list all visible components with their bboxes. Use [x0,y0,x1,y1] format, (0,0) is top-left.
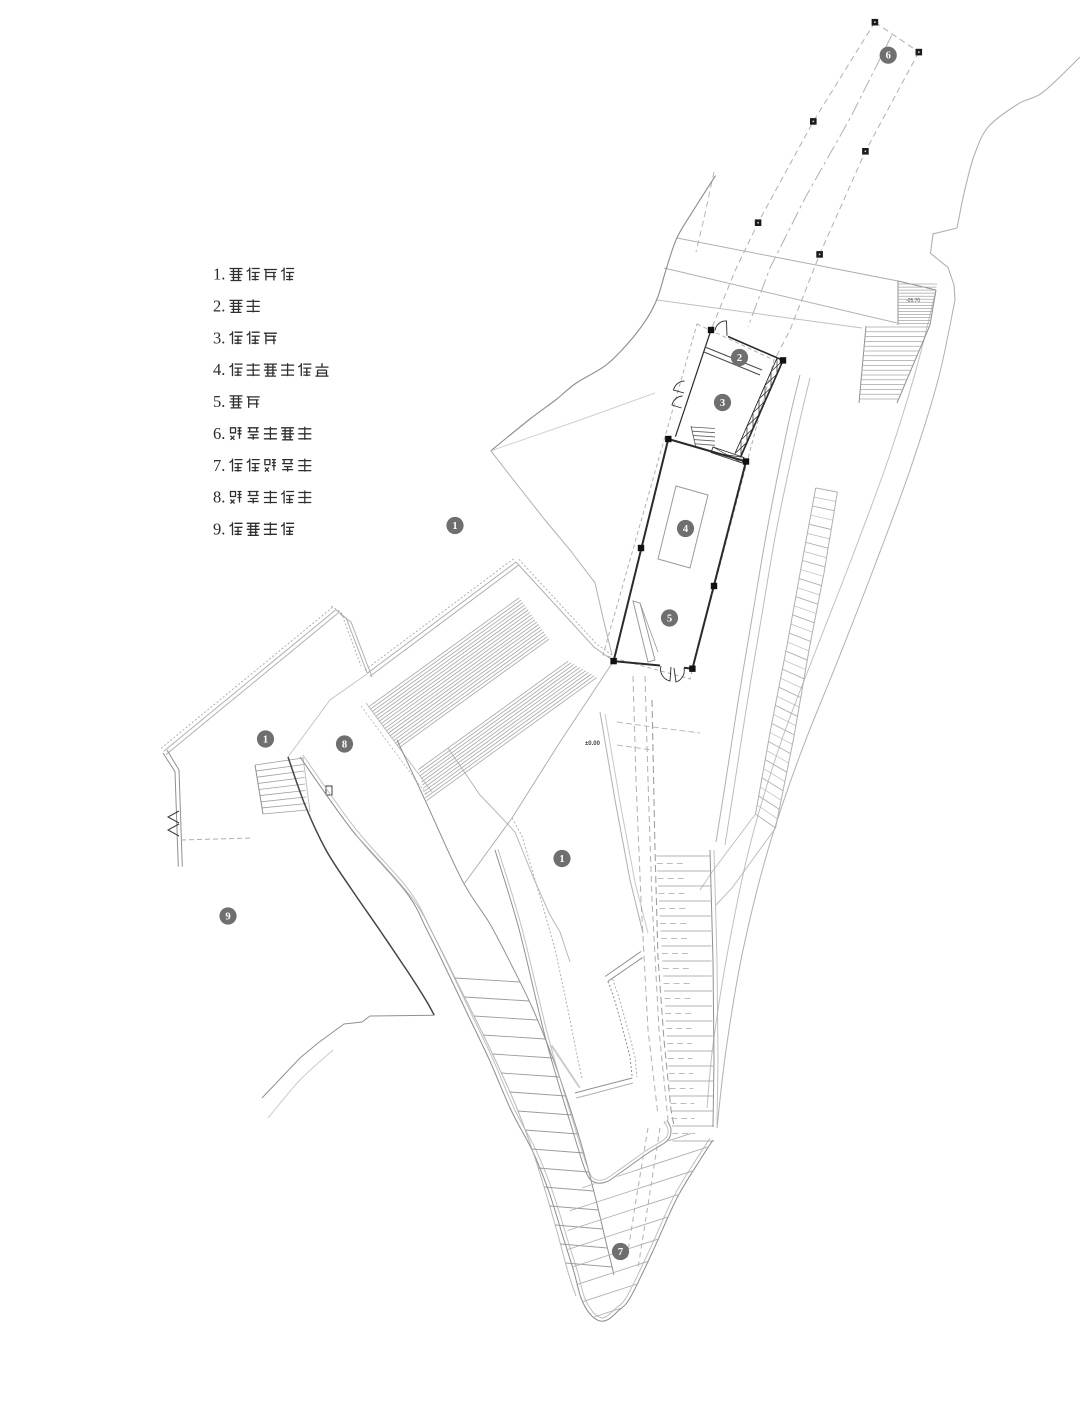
svg-text:6.: 6. [213,424,225,443]
svg-text:9: 9 [225,911,230,922]
svg-text:5.: 5. [213,392,225,411]
svg-text:1: 1 [263,734,268,745]
svg-text:5: 5 [667,613,672,624]
svg-text:1.: 1. [213,265,225,284]
svg-text:8: 8 [342,739,347,750]
svg-text:-05.70: -05.70 [906,298,920,304]
svg-text:1: 1 [452,521,457,532]
svg-text:7: 7 [618,1247,623,1258]
svg-text:3.: 3. [213,328,225,347]
svg-text:1: 1 [559,854,564,865]
svg-text:±0.00: ±0.00 [585,741,601,747]
svg-text:2.: 2. [213,297,225,316]
svg-text:2: 2 [737,353,742,364]
svg-text:9.: 9. [213,520,225,539]
svg-text:3: 3 [720,398,725,409]
svg-text:4.: 4. [213,360,225,379]
svg-text:8.: 8. [213,488,225,507]
svg-text:6: 6 [886,51,891,62]
svg-text:4: 4 [683,524,689,535]
svg-text:7.: 7. [213,456,225,475]
